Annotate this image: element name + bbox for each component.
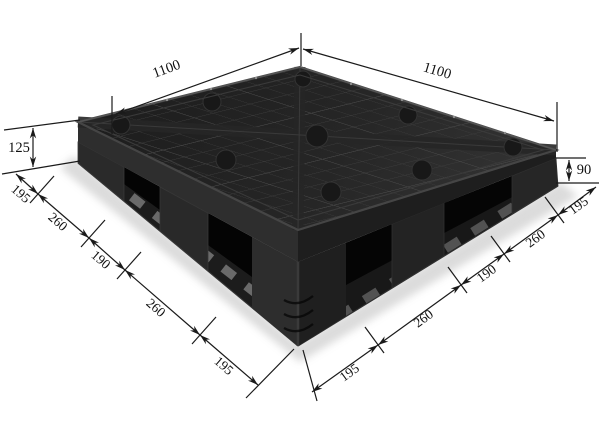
dim-label-height-125: 125 — [8, 140, 30, 156]
figure-canvas: 1100 1100 125 90 195 260 190 260 195 195… — [0, 0, 600, 429]
pallet-dimension-figure: 1100 1100 125 90 195 260 190 260 195 195… — [0, 0, 600, 429]
dim-label-opening-90: 90 — [577, 162, 592, 178]
